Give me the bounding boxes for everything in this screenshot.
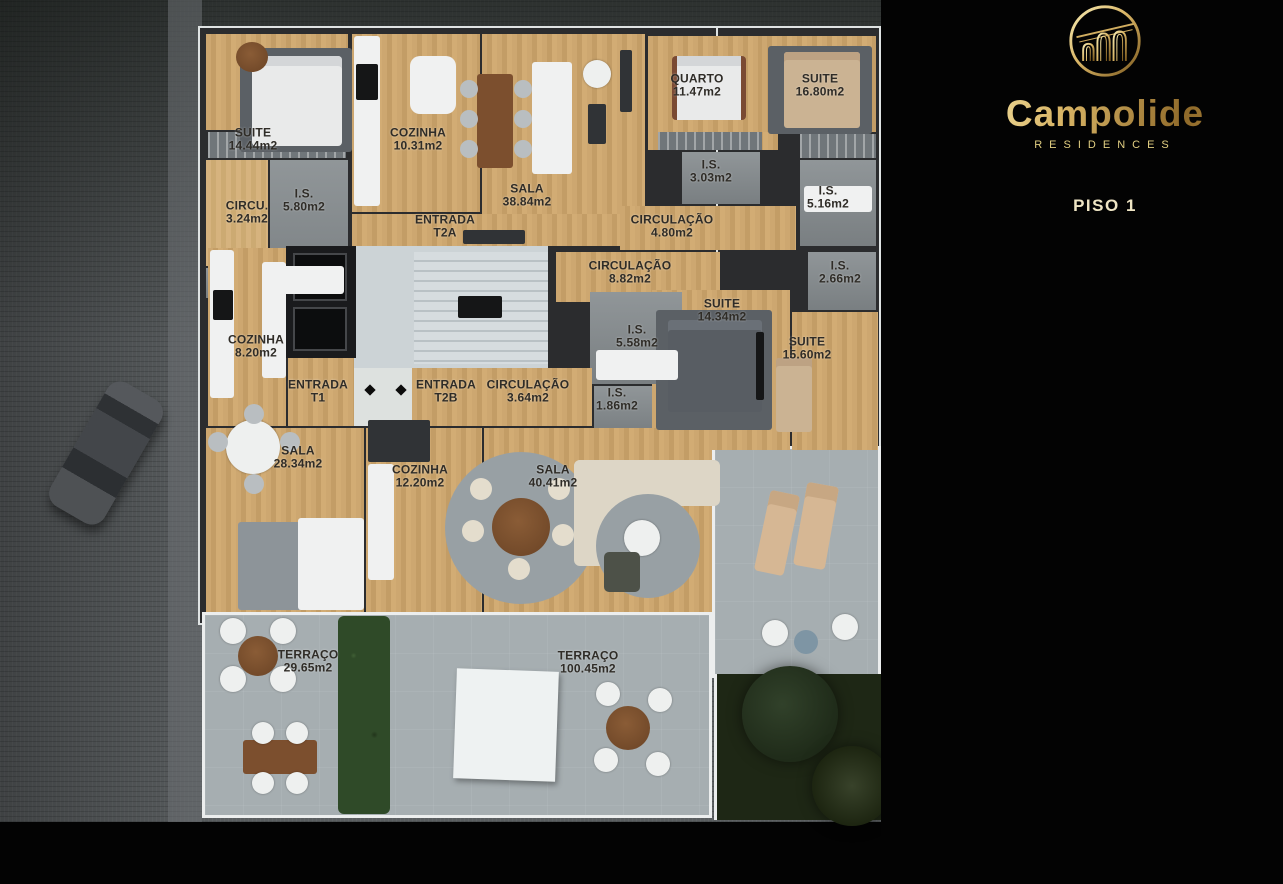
room-label: ENTRADAT2B <box>416 379 476 406</box>
room-label: CIRCULAÇÃO4.80m2 <box>631 214 714 241</box>
room-label: I.S.3.03m2 <box>690 159 732 186</box>
room-label: I.S.5.58m2 <box>616 324 658 351</box>
room-label: CIRCULAÇÃO3.64m2 <box>487 379 570 406</box>
aqueduct-logo-icon <box>1067 2 1143 80</box>
room-label: QUARTO11.47m2 <box>671 73 724 100</box>
room-label: SUITE16.80m2 <box>796 73 845 100</box>
room-label: COZINHA12.20m2 <box>392 464 448 491</box>
floor-title: PISO 1 <box>925 196 1283 216</box>
room-label: I.S.1.86m2 <box>596 387 638 414</box>
room-label: COZINHA8.20m2 <box>228 334 284 361</box>
room-label: SUITE14.34m2 <box>698 298 747 325</box>
info-panel: Campolide RESIDENCES PISO 1 T2 A ÁREA DE… <box>881 0 1283 884</box>
room-label: COZINHA10.31m2 <box>390 127 446 154</box>
room-label: SALA40.41m2 <box>529 464 578 491</box>
room-label: TERRAÇO100.45m2 <box>558 650 619 677</box>
room-label: I.S.5.16m2 <box>807 185 849 212</box>
room-label: SALA28.34m2 <box>274 445 323 472</box>
room-label: SALA38.84m2 <box>503 183 552 210</box>
room-label: TERRAÇO29.65m2 <box>278 649 339 676</box>
brand-logo-block: Campolide RESIDENCES <box>925 2 1283 151</box>
room-label: CIRCULAÇÃO8.82m2 <box>589 260 672 287</box>
room-label: ENTRADAT2A <box>415 214 475 241</box>
brand-name: Campolide <box>925 93 1283 135</box>
room-label: SUITE14.44m2 <box>229 127 278 154</box>
brochure-page: SUITE14.44m2COZINHA10.31m2SALA38.84m2QUA… <box>0 0 1283 884</box>
brand-subtitle: RESIDENCES <box>925 139 1283 151</box>
room-label: CIRCU.3.24m2 <box>226 200 269 227</box>
floorplan-photo: SUITE14.44m2COZINHA10.31m2SALA38.84m2QUA… <box>0 0 883 884</box>
room-labels-layer: SUITE14.44m2COZINHA10.31m2SALA38.84m2QUA… <box>0 0 883 884</box>
room-label: I.S.5.80m2 <box>283 188 325 215</box>
room-label: SUITE15.60m2 <box>783 336 832 363</box>
room-label: ENTRADAT1 <box>288 379 348 406</box>
room-label: I.S.2.66m2 <box>819 260 861 287</box>
